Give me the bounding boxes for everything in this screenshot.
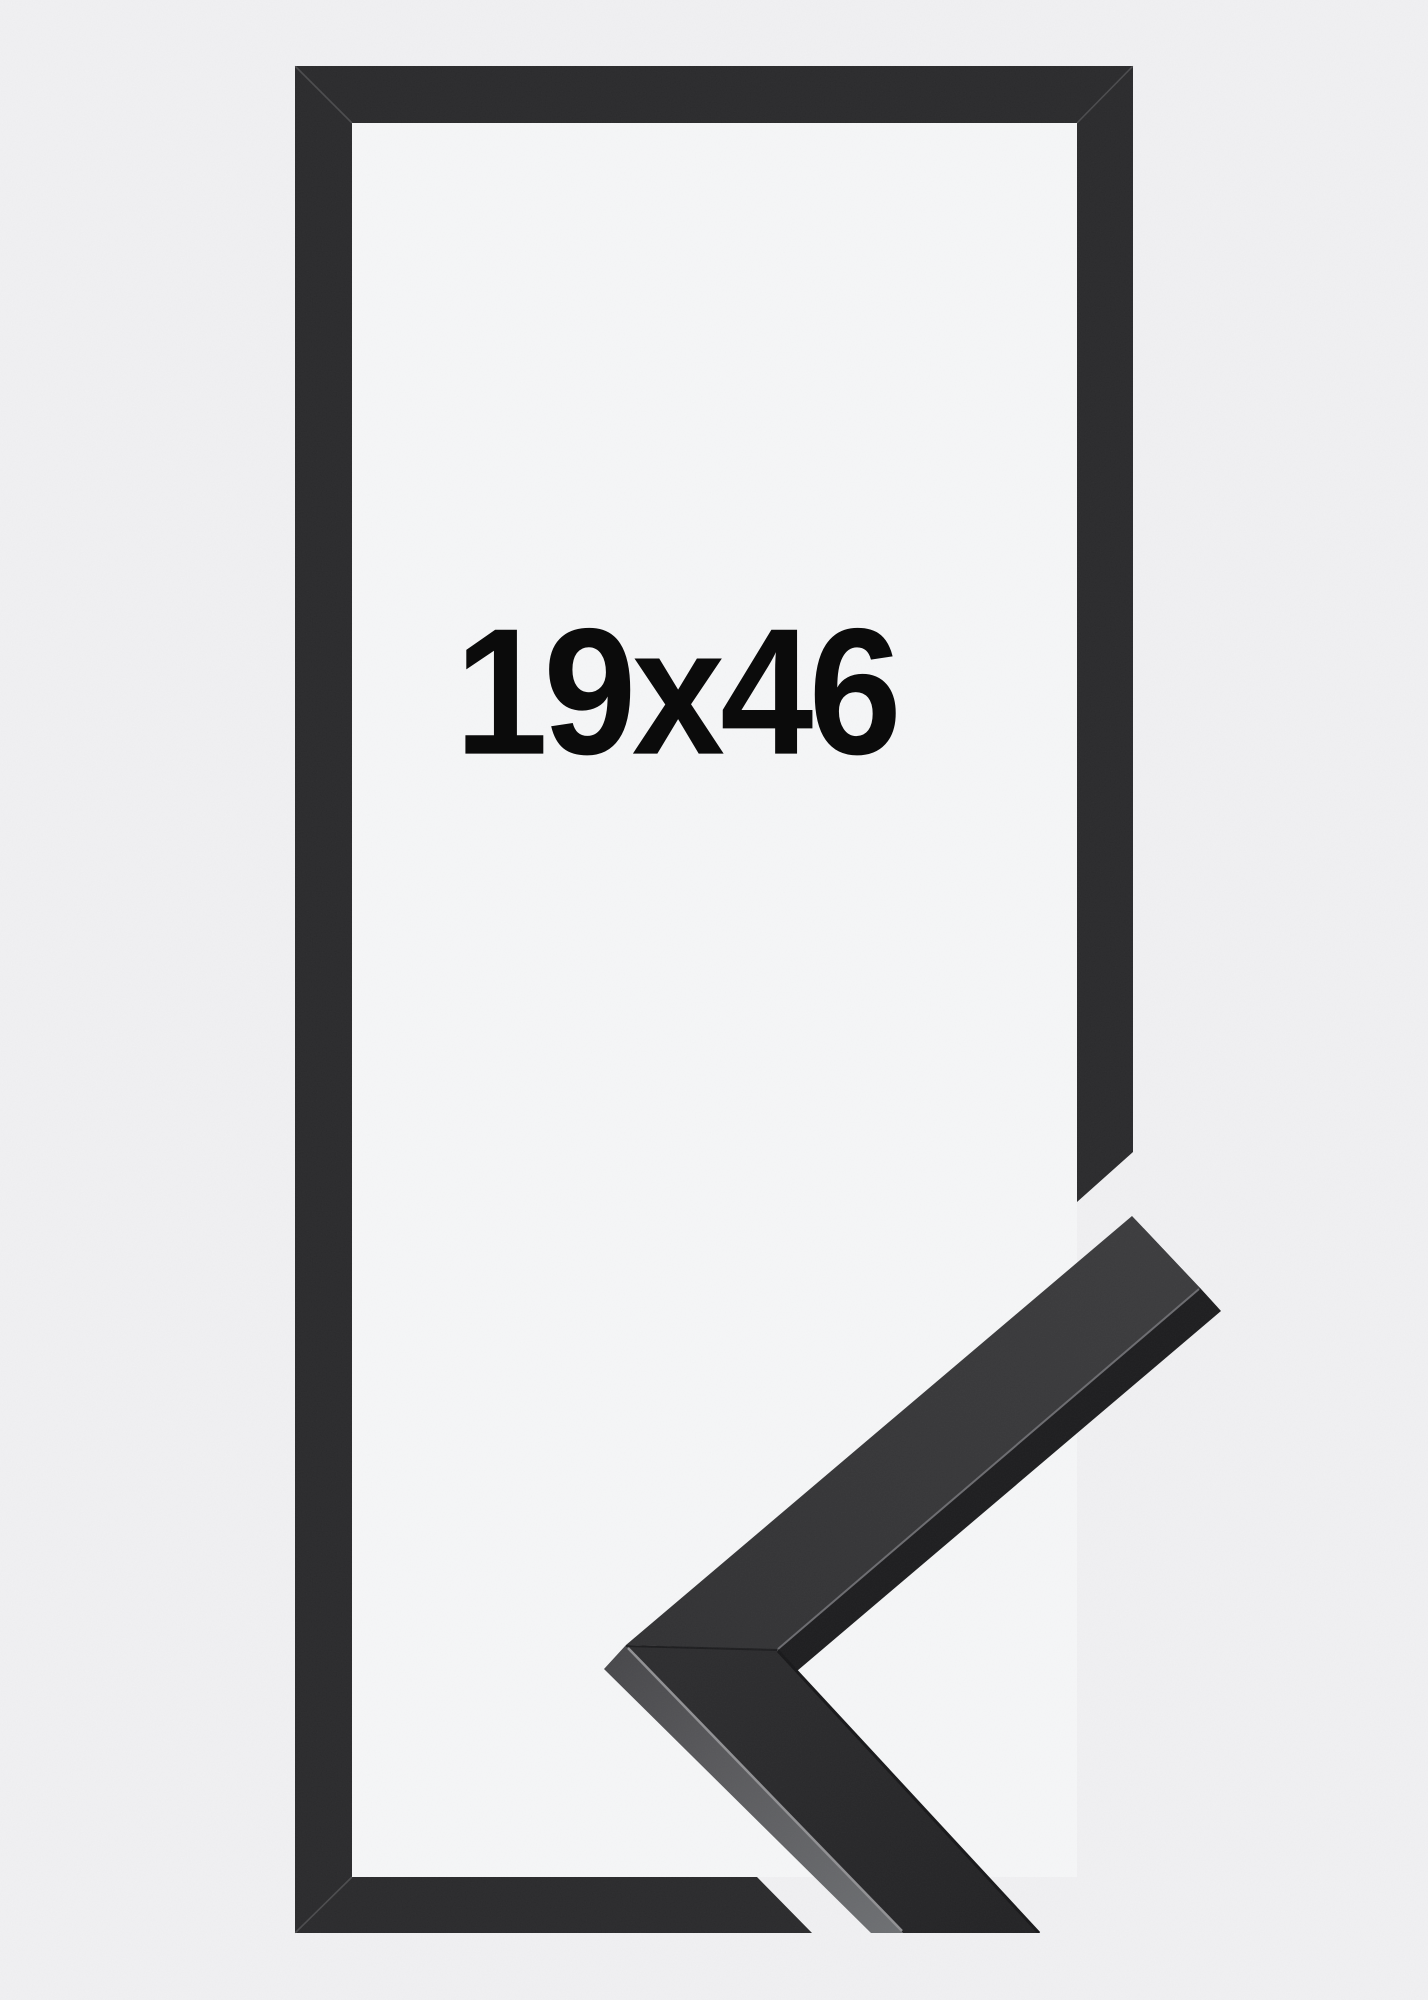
frame-illustration	[0, 0, 1428, 2000]
product-photo-frame-19x46[interactable]: 19x46	[0, 0, 1428, 2000]
size-label: 19x46	[455, 603, 897, 783]
photo-grain-overlay	[0, 0, 1428, 2000]
